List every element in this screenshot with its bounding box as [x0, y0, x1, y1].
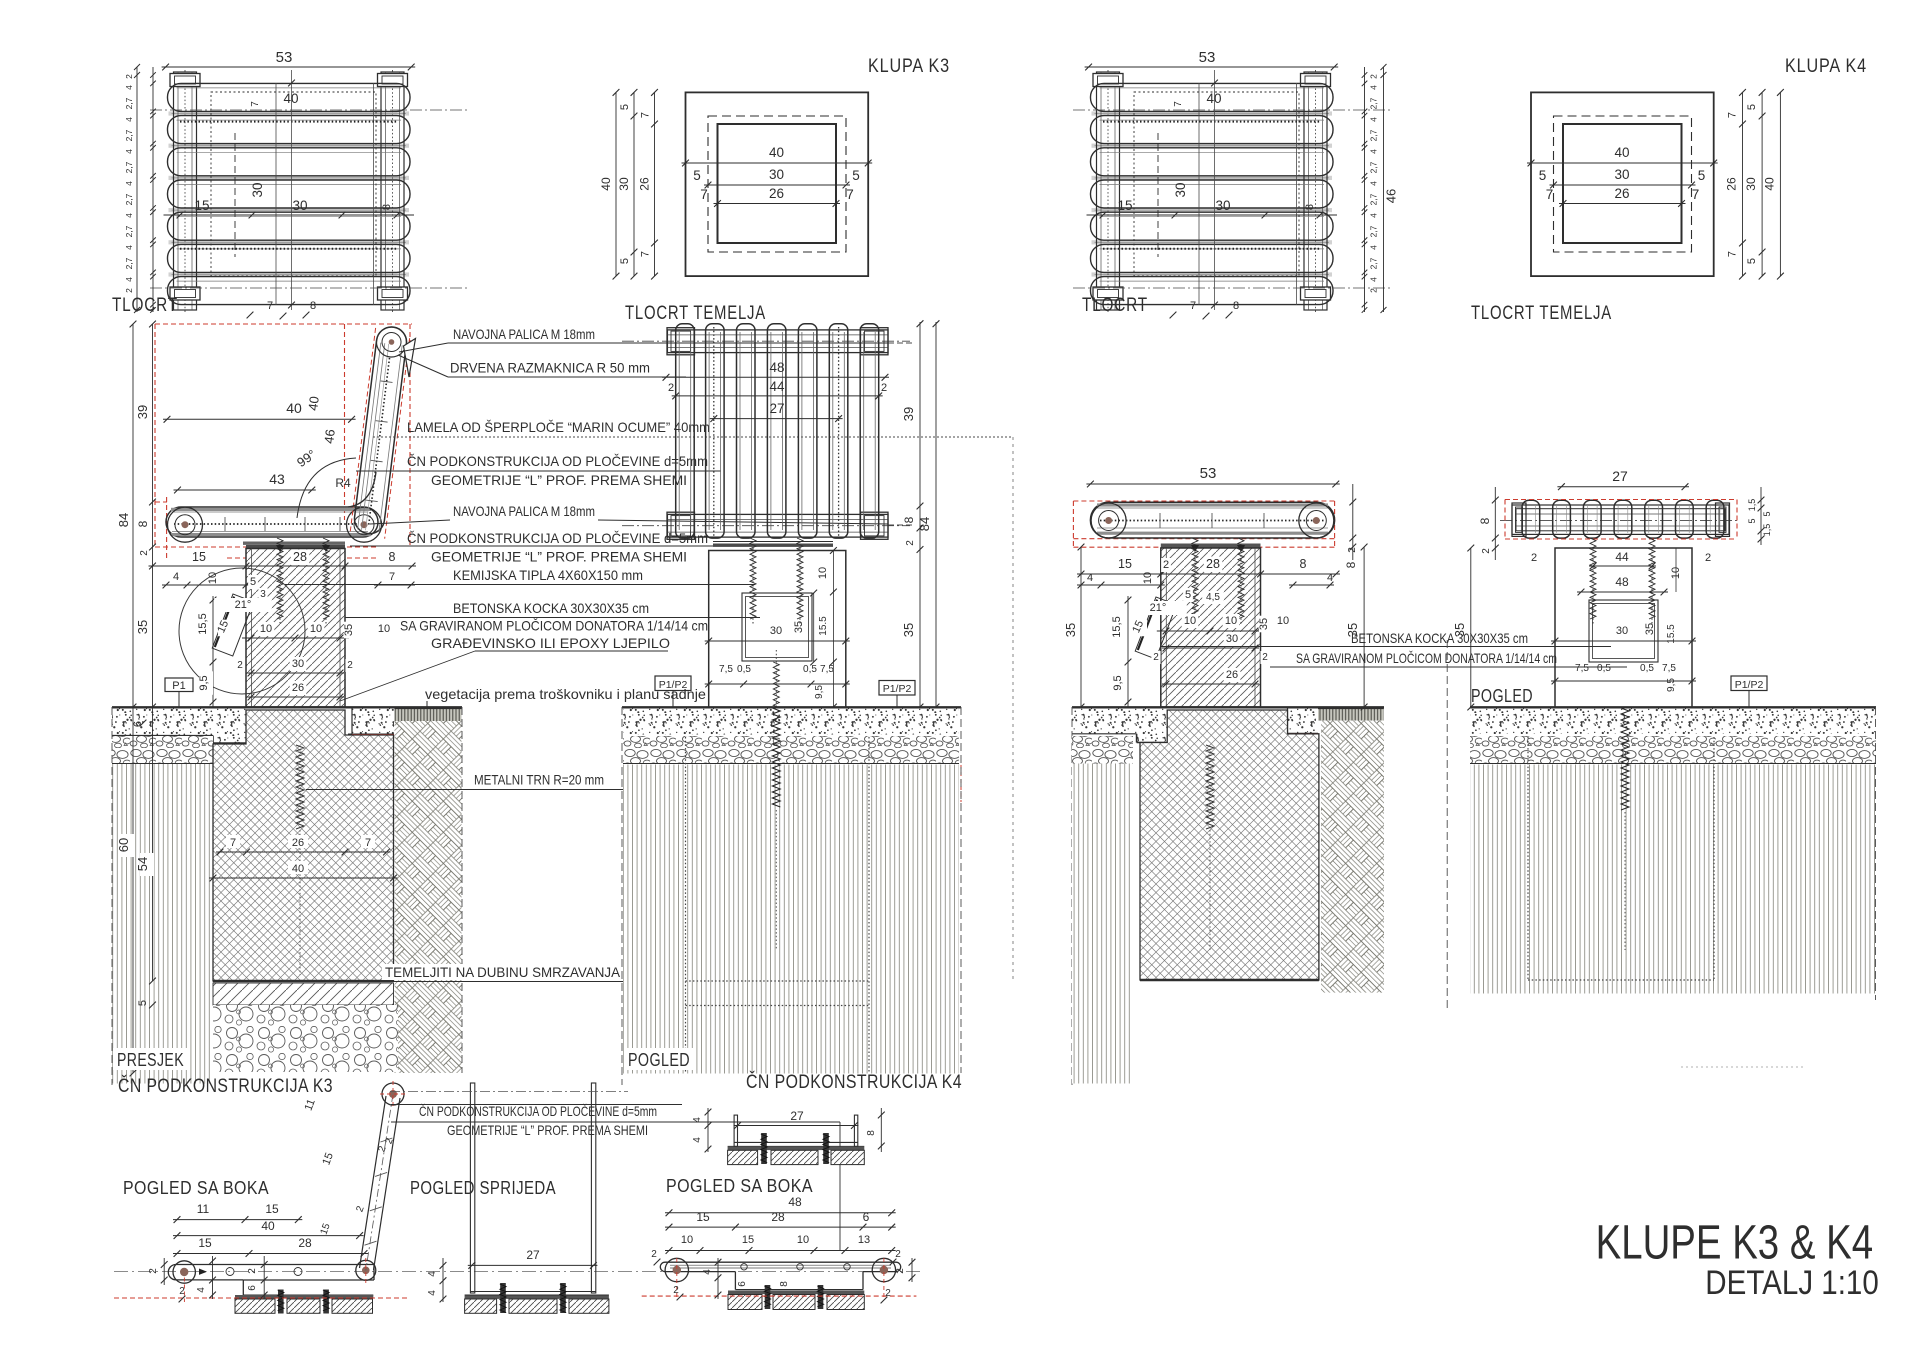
svg-text:53: 53	[1199, 49, 1216, 66]
svg-text:2: 2	[1481, 548, 1492, 554]
svg-text:48: 48	[1615, 575, 1629, 589]
svg-text:35: 35	[343, 624, 355, 636]
svg-text:35: 35	[1063, 623, 1078, 637]
svg-text:2: 2	[651, 1249, 657, 1260]
svg-text:8: 8	[1300, 557, 1307, 571]
svg-text:KLUPA K3: KLUPA K3	[868, 56, 950, 77]
svg-text:9,5: 9,5	[1112, 675, 1124, 690]
svg-text:POGLED SA BOKA: POGLED SA BOKA	[666, 1176, 813, 1196]
svg-text:ČN PODKONSTRUKCIJA K3: ČN PODKONSTRUKCIJA K3	[118, 1075, 333, 1097]
svg-text:0,5: 0,5	[737, 664, 751, 675]
svg-text:2,7: 2,7	[1369, 161, 1379, 173]
svg-text:1,5: 1,5	[1762, 524, 1772, 537]
svg-text:7: 7	[1190, 300, 1196, 312]
svg-text:30: 30	[769, 167, 784, 182]
svg-text:35: 35	[793, 621, 805, 633]
svg-text:2: 2	[881, 382, 887, 394]
svg-text:5: 5	[1746, 258, 1758, 264]
svg-text:4: 4	[1369, 85, 1379, 90]
svg-text:40: 40	[1762, 177, 1776, 191]
svg-text:53: 53	[276, 49, 293, 66]
svg-text:2: 2	[1369, 288, 1379, 293]
svg-text:15: 15	[742, 1234, 754, 1246]
svg-text:43: 43	[269, 471, 285, 487]
svg-text:4: 4	[173, 571, 179, 583]
svg-text:30: 30	[1744, 177, 1758, 191]
svg-text:7: 7	[846, 187, 854, 202]
svg-text:2: 2	[124, 288, 134, 293]
svg-text:2,7: 2,7	[1369, 225, 1379, 237]
svg-text:35: 35	[1452, 623, 1467, 637]
svg-text:30: 30	[770, 625, 782, 637]
svg-text:GEOMETRIJE “L” PROF. PREMA SHE: GEOMETRIJE “L” PROF. PREMA SHEMI	[447, 1122, 648, 1138]
svg-text:8: 8	[1304, 204, 1316, 210]
svg-text:13: 13	[858, 1234, 870, 1246]
svg-text:BETONSKA KOCKA 30X30X35 cm: BETONSKA KOCKA 30X30X35 cm	[1351, 630, 1528, 646]
svg-text:84: 84	[116, 513, 131, 527]
svg-text:7: 7	[250, 101, 261, 107]
svg-text:4: 4	[124, 117, 134, 122]
svg-text:30: 30	[250, 182, 265, 197]
svg-text:35: 35	[1345, 623, 1360, 637]
svg-text:11: 11	[197, 1202, 210, 1216]
svg-text:26: 26	[638, 177, 652, 191]
svg-text:7,5: 7,5	[719, 664, 733, 675]
svg-text:10: 10	[378, 623, 390, 635]
svg-text:4: 4	[1087, 572, 1093, 584]
svg-text:8: 8	[310, 300, 316, 312]
svg-text:P1/P2: P1/P2	[883, 683, 912, 695]
svg-text:44: 44	[1615, 550, 1629, 564]
svg-text:6: 6	[132, 721, 144, 727]
svg-text:2: 2	[1369, 74, 1379, 79]
svg-text:48: 48	[788, 1195, 802, 1209]
svg-text:40: 40	[769, 145, 784, 160]
svg-text:2: 2	[124, 74, 134, 79]
svg-text:TEMELJITI NA DUBINU SMRZAVANJA: TEMELJITI NA DUBINU SMRZAVANJA	[385, 964, 621, 980]
svg-text:8: 8	[1478, 517, 1492, 524]
svg-text:46: 46	[1384, 189, 1399, 203]
svg-text:40: 40	[283, 91, 298, 106]
svg-text:7: 7	[1727, 112, 1739, 118]
svg-text:4: 4	[702, 1269, 713, 1275]
svg-text:NAVOJNA PALICA M 18mm: NAVOJNA PALICA M 18mm	[453, 503, 595, 519]
svg-text:TLOCRT: TLOCRT	[1082, 295, 1148, 316]
svg-text:ČN PODKONSTRUKCIJA OD PLOČEVI: ČN PODKONSTRUKCIJA OD PLOČEVINE d=5mm	[419, 1103, 657, 1119]
svg-text:5: 5	[250, 576, 256, 588]
svg-text:35: 35	[135, 620, 150, 634]
svg-text:40: 40	[1206, 91, 1221, 106]
svg-text:35: 35	[1644, 623, 1656, 635]
svg-text:P1/P2: P1/P2	[1735, 679, 1764, 691]
svg-text:30: 30	[292, 658, 304, 670]
svg-text:4: 4	[692, 1117, 703, 1123]
svg-text:SA GRAVIRANOM PLOČICOM DONATOR: SA GRAVIRANOM PLOČICOM DONATORA 1/14/14 …	[400, 618, 708, 634]
svg-text:10: 10	[1184, 615, 1196, 627]
svg-text:2: 2	[905, 540, 916, 546]
svg-text:8: 8	[1233, 300, 1239, 312]
svg-text:ČN PODKONSTRUKCIJA OD PLOČEVI: ČN PODKONSTRUKCIJA OD PLOČEVINE d=5mm	[407, 453, 708, 469]
svg-text:10: 10	[260, 623, 272, 635]
svg-text:8: 8	[1344, 561, 1358, 568]
svg-text:2: 2	[1705, 552, 1711, 564]
svg-text:54: 54	[135, 857, 150, 871]
svg-text:8: 8	[389, 550, 396, 564]
svg-text:35: 35	[901, 623, 916, 637]
svg-text:KLUPA K4: KLUPA K4	[1785, 56, 1867, 77]
svg-text:5: 5	[619, 104, 631, 110]
svg-text:NAVOJNA PALICA M 18mm: NAVOJNA PALICA M 18mm	[453, 326, 595, 342]
svg-text:TLOCRT TEMELJA: TLOCRT TEMELJA	[625, 303, 766, 324]
svg-text:4: 4	[1369, 181, 1379, 186]
svg-text:2,7: 2,7	[124, 161, 134, 173]
svg-text:7: 7	[640, 251, 652, 257]
svg-text:5: 5	[619, 258, 631, 264]
svg-text:30: 30	[1614, 167, 1629, 182]
svg-text:8: 8	[779, 1281, 790, 1287]
svg-text:30: 30	[1616, 625, 1628, 637]
svg-text:9,5: 9,5	[1666, 678, 1677, 692]
svg-text:40: 40	[599, 177, 613, 191]
svg-text:15.5: 15.5	[818, 616, 829, 636]
svg-text:KLUPE K3 & K4: KLUPE K3 & K4	[1596, 1217, 1874, 1270]
svg-text:10: 10	[681, 1234, 693, 1246]
svg-text:2: 2	[668, 382, 674, 394]
svg-text:7,5: 7,5	[1662, 663, 1676, 674]
svg-text:4: 4	[1369, 149, 1379, 154]
svg-text:10: 10	[207, 572, 219, 584]
svg-text:4: 4	[124, 245, 134, 250]
svg-text:7: 7	[1546, 187, 1554, 202]
svg-text:5: 5	[1698, 168, 1706, 183]
svg-text:48: 48	[769, 360, 784, 375]
svg-text:DETALJ 1:10: DETALJ 1:10	[1705, 1264, 1879, 1302]
svg-text:7: 7	[267, 300, 273, 312]
svg-text:30: 30	[617, 177, 631, 191]
svg-text:2,7: 2,7	[1369, 97, 1379, 109]
svg-text:GEOMETRIJE “L” PROF. PREMA SHE: GEOMETRIJE “L” PROF. PREMA SHEMI	[431, 472, 687, 488]
svg-text:30: 30	[1226, 633, 1238, 645]
svg-text:15,5: 15,5	[1111, 616, 1123, 637]
svg-text:2: 2	[1531, 552, 1537, 564]
svg-text:2: 2	[1153, 652, 1159, 663]
svg-text:2,7: 2,7	[1369, 257, 1379, 269]
svg-text:4: 4	[1369, 213, 1379, 218]
svg-text:7: 7	[1727, 251, 1739, 257]
svg-text:4: 4	[1369, 117, 1379, 122]
svg-text:2: 2	[237, 660, 243, 671]
svg-text:26: 26	[1226, 669, 1238, 681]
svg-text:27: 27	[526, 1248, 540, 1262]
svg-text:26: 26	[1725, 177, 1739, 191]
svg-text:9,5: 9,5	[814, 685, 825, 699]
svg-text:28: 28	[293, 550, 307, 564]
svg-text:4: 4	[427, 1271, 438, 1277]
svg-text:0,5: 0,5	[1640, 663, 1654, 674]
svg-text:METALNI TRN R=20 mm: METALNI TRN R=20 mm	[474, 772, 604, 788]
svg-text:POGLED: POGLED	[1471, 686, 1533, 706]
svg-text:LAMELA OD ŠPERPLOČE “MARIN OCU: LAMELA OD ŠPERPLOČE “MARIN OCUME” 40mm	[407, 419, 710, 435]
svg-text:2,7: 2,7	[1369, 129, 1379, 141]
svg-text:84: 84	[917, 517, 932, 531]
svg-text:8: 8	[902, 516, 916, 523]
svg-text:10: 10	[1142, 572, 1154, 584]
svg-text:5: 5	[1762, 511, 1772, 516]
svg-text:SA GRAVIRANOM PLOČICOM DONATOR: SA GRAVIRANOM PLOČICOM DONATORA 1/14/14 …	[1296, 650, 1557, 666]
svg-text:8: 8	[136, 520, 150, 527]
svg-text:2: 2	[1163, 559, 1169, 571]
svg-text:6: 6	[863, 1210, 870, 1224]
svg-text:40: 40	[305, 395, 322, 411]
svg-text:46: 46	[321, 428, 338, 444]
svg-text:5: 5	[693, 168, 701, 183]
svg-text:4: 4	[124, 181, 134, 186]
svg-text:KEMIJSKA TIPLA 4X60X150 mm: KEMIJSKA TIPLA 4X60X150 mm	[453, 567, 643, 583]
svg-text:53: 53	[1200, 465, 1217, 482]
svg-text:2: 2	[139, 550, 150, 556]
svg-text:R4: R4	[335, 476, 351, 490]
svg-text:10: 10	[1277, 615, 1289, 627]
svg-text:39: 39	[135, 405, 150, 419]
svg-text:28: 28	[771, 1210, 785, 1224]
svg-text:26: 26	[292, 837, 304, 849]
svg-text:10: 10	[1225, 615, 1237, 627]
svg-text:2,7: 2,7	[124, 257, 134, 269]
svg-text:6: 6	[737, 1281, 748, 1287]
svg-text:POGLED SPRIJEDA: POGLED SPRIJEDA	[410, 1178, 556, 1198]
svg-text:5: 5	[1185, 589, 1191, 601]
svg-text:5: 5	[1747, 518, 1757, 523]
svg-text:ČN PODKONSTRUKCIJA K4: ČN PODKONSTRUKCIJA K4	[746, 1071, 962, 1093]
svg-text:10: 10	[310, 623, 322, 635]
svg-text:2: 2	[673, 1285, 679, 1296]
svg-text:P1: P1	[172, 680, 185, 692]
svg-text:4: 4	[427, 1290, 438, 1296]
svg-text:7: 7	[700, 187, 708, 202]
svg-text:30: 30	[292, 198, 307, 213]
svg-text:7: 7	[230, 837, 236, 849]
svg-text:7,5: 7,5	[1575, 663, 1589, 674]
svg-text:40: 40	[286, 400, 302, 416]
svg-text:15.5: 15.5	[1666, 624, 1677, 644]
svg-text:7,5: 7,5	[820, 664, 834, 675]
svg-text:60: 60	[116, 838, 131, 852]
svg-text:10: 10	[797, 1234, 809, 1246]
svg-text:7: 7	[389, 571, 395, 583]
svg-text:4: 4	[196, 1287, 207, 1293]
svg-text:5: 5	[137, 1000, 149, 1006]
svg-text:8: 8	[866, 1130, 877, 1136]
svg-text:2: 2	[179, 1286, 185, 1297]
svg-text:TLOCRT TEMELJA: TLOCRT TEMELJA	[1471, 303, 1612, 324]
svg-text:GEOMETRIJE “L” PROF. PREMA SHE: GEOMETRIJE “L” PROF. PREMA SHEMI	[431, 549, 687, 565]
svg-text:6: 6	[247, 1285, 258, 1291]
svg-text:39: 39	[901, 407, 916, 421]
svg-text:POGLED: POGLED	[628, 1050, 690, 1070]
svg-text:28: 28	[1206, 557, 1220, 571]
svg-text:2,7: 2,7	[124, 97, 134, 109]
svg-text:4: 4	[124, 85, 134, 90]
svg-text:5: 5	[852, 168, 860, 183]
svg-text:4: 4	[124, 213, 134, 218]
svg-text:0,5: 0,5	[803, 664, 817, 675]
svg-text:4: 4	[1369, 245, 1379, 250]
svg-text:4: 4	[1369, 277, 1379, 282]
svg-text:27: 27	[769, 401, 784, 416]
svg-text:8: 8	[381, 204, 393, 210]
svg-text:2,7: 2,7	[124, 225, 134, 237]
svg-text:9,5: 9,5	[198, 675, 210, 690]
svg-text:4,5: 4,5	[1206, 592, 1220, 603]
svg-text:7: 7	[640, 112, 652, 118]
svg-text:7: 7	[1173, 101, 1184, 107]
svg-text:4: 4	[692, 1137, 703, 1143]
svg-text:P1/P2: P1/P2	[659, 679, 688, 691]
svg-text:30: 30	[1215, 198, 1230, 213]
svg-text:15: 15	[1118, 557, 1132, 571]
svg-text:15: 15	[194, 198, 209, 213]
svg-text:15: 15	[192, 550, 206, 564]
svg-text:POGLED SA BOKA: POGLED SA BOKA	[123, 1178, 269, 1198]
svg-text:7: 7	[1692, 187, 1700, 202]
svg-text:BETONSKA KOCKA 30X30X35 cm: BETONSKA KOCKA 30X30X35 cm	[453, 600, 649, 616]
svg-text:3: 3	[260, 589, 266, 600]
svg-text:2: 2	[1262, 652, 1268, 663]
svg-text:26: 26	[769, 186, 784, 201]
svg-text:40: 40	[1614, 145, 1629, 160]
svg-text:7: 7	[365, 837, 371, 849]
svg-text:5: 5	[1746, 104, 1758, 110]
svg-text:10: 10	[817, 567, 829, 579]
svg-text:4: 4	[1327, 572, 1333, 584]
svg-text:15,5: 15,5	[197, 613, 209, 634]
svg-text:26: 26	[292, 682, 304, 694]
svg-text:5: 5	[1539, 168, 1547, 183]
svg-text:35: 35	[1258, 618, 1270, 630]
svg-text:TLOCRT: TLOCRT	[112, 295, 178, 316]
svg-text:2: 2	[247, 1268, 258, 1274]
svg-text:15: 15	[696, 1210, 710, 1224]
svg-text:40: 40	[261, 1219, 275, 1233]
svg-text:44: 44	[769, 379, 785, 394]
svg-text:21°: 21°	[235, 599, 252, 611]
svg-text:2,7: 2,7	[1369, 193, 1379, 205]
svg-text:GRAĐEVINSKO ILI EPOXY LJEPILO: GRAĐEVINSKO ILI EPOXY LJEPILO	[431, 635, 670, 651]
svg-text:40: 40	[292, 863, 304, 875]
svg-text:DRVENA RAZMAKNICA R 50 mm: DRVENA RAZMAKNICA R 50 mm	[450, 360, 650, 376]
svg-text:1,5: 1,5	[1747, 499, 1757, 512]
svg-text:30: 30	[1173, 182, 1188, 197]
svg-text:0,5: 0,5	[1597, 663, 1611, 674]
svg-text:27: 27	[790, 1109, 804, 1123]
svg-text:26: 26	[1614, 186, 1629, 201]
svg-text:4: 4	[124, 149, 134, 154]
svg-text:2,7: 2,7	[124, 129, 134, 141]
svg-text:28: 28	[298, 1236, 312, 1250]
svg-text:2: 2	[148, 1268, 159, 1274]
svg-text:PRESJEK: PRESJEK	[117, 1050, 184, 1070]
svg-text:ČN PODKONSTRUKCIJA OD PLOČEVI: ČN PODKONSTRUKCIJA OD PLOČEVINE d=5mm	[407, 530, 708, 546]
svg-text:27: 27	[1612, 468, 1628, 484]
svg-text:21°: 21°	[1150, 602, 1167, 614]
svg-text:2: 2	[347, 660, 353, 671]
svg-text:15: 15	[198, 1236, 212, 1250]
svg-text:2,7: 2,7	[124, 193, 134, 205]
svg-text:4: 4	[124, 277, 134, 282]
svg-text:15: 15	[1117, 198, 1132, 213]
svg-text:2: 2	[895, 1268, 906, 1274]
svg-text:15: 15	[265, 1202, 279, 1216]
